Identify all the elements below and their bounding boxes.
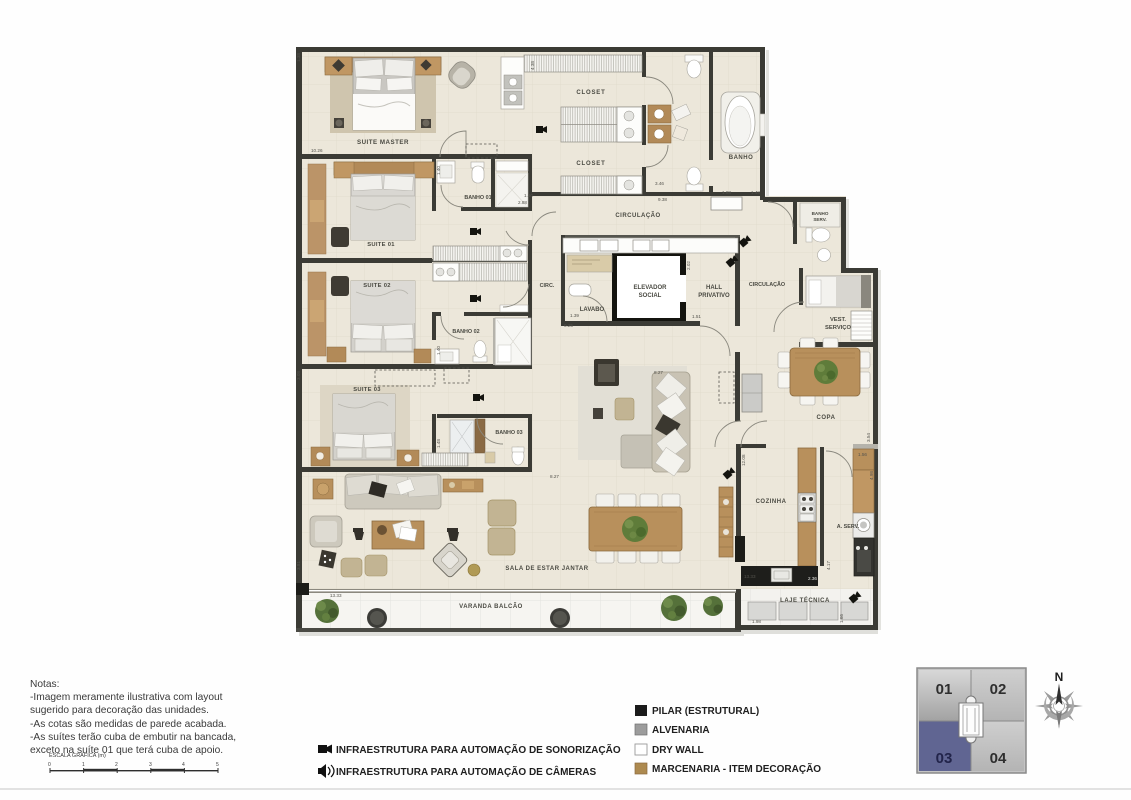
svg-text:1.38: 1.38	[296, 53, 301, 62]
svg-text:0: 0	[48, 762, 51, 768]
svg-text:1.48: 1.48	[436, 439, 441, 448]
svg-text:8.27: 8.27	[654, 370, 663, 375]
svg-text:13.33: 13.33	[744, 574, 756, 579]
svg-text:1.56: 1.56	[858, 452, 867, 457]
svg-text:SUITE 03: SUITE 03	[353, 387, 381, 393]
svg-text:BANHO 03: BANHO 03	[495, 430, 522, 436]
svg-text:LAJE TÉCNICA: LAJE TÉCNICA	[780, 596, 830, 604]
svg-text:04: 04	[990, 750, 1007, 767]
svg-text:ELEVADOR: ELEVADOR	[634, 285, 668, 291]
svg-text:-As cotas são medidas de pared: -As cotas são medidas de parede acabada.	[30, 719, 227, 730]
svg-text:4: 4	[182, 762, 185, 768]
svg-text:SOCIAL: SOCIAL	[639, 293, 662, 299]
svg-text:SALA DE ESTAR JANTAR: SALA DE ESTAR JANTAR	[505, 566, 588, 572]
svg-text:COZINHA: COZINHA	[756, 499, 787, 505]
svg-text:CLOSET: CLOSET	[576, 161, 605, 167]
svg-text:1.80: 1.80	[524, 193, 533, 198]
svg-text:sugerido para decoração das un: sugerido para decoração das unidades.	[30, 705, 209, 716]
svg-text:4.38: 4.38	[530, 61, 535, 70]
svg-text:SERVIÇO: SERVIÇO	[825, 325, 851, 331]
svg-text:CIRCULAÇÃO: CIRCULAÇÃO	[749, 281, 785, 288]
svg-text:ESCALA GRÁFICA (m): ESCALA GRÁFICA (m)	[49, 752, 106, 759]
svg-text:SUITE MASTER: SUITE MASTER	[357, 139, 409, 146]
svg-text:3.81: 3.81	[296, 561, 301, 570]
svg-text:-Imagem meramente ilustrativa: -Imagem meramente ilustrativa com layout	[30, 692, 223, 703]
svg-text:3.08: 3.08	[296, 371, 301, 380]
svg-text:1.48: 1.48	[751, 190, 760, 195]
svg-text:BANHO: BANHO	[729, 155, 754, 161]
svg-text:01: 01	[936, 681, 953, 698]
svg-text:02: 02	[990, 681, 1007, 698]
svg-text:VARANDA BALCÃO: VARANDA BALCÃO	[459, 603, 523, 610]
svg-text:VEST.: VEST.	[830, 317, 846, 323]
svg-text:BANHO 01: BANHO 01	[464, 195, 491, 201]
svg-text:CIRC.: CIRC.	[540, 283, 555, 289]
svg-text:MARCENARIA - ITEM DECORAÇÃO: MARCENARIA - ITEM DECORAÇÃO	[652, 762, 821, 775]
svg-text:5: 5	[216, 762, 219, 768]
svg-text:Notas:: Notas:	[30, 679, 59, 690]
svg-text:CLOSET: CLOSET	[576, 90, 605, 96]
svg-text:DRY WALL: DRY WALL	[652, 745, 704, 756]
svg-text:3.46: 3.46	[655, 181, 664, 186]
svg-text:PILAR (ESTRUTURAL): PILAR (ESTRUTURAL)	[652, 706, 759, 717]
svg-text:1.40: 1.40	[436, 346, 441, 355]
svg-text:INFRAESTRUTURA PARA AUTOMAÇÃO: INFRAESTRUTURA PARA AUTOMAÇÃO DE SONORIZ…	[336, 743, 621, 756]
svg-text:N: N	[1055, 670, 1064, 684]
svg-text:3: 3	[149, 762, 152, 768]
svg-text:4.17: 4.17	[826, 561, 831, 570]
svg-text:03: 03	[936, 750, 953, 767]
svg-text:-As suítes terão cuba de embu: -As suítes terão cuba de embutir na banc…	[30, 732, 236, 743]
svg-text:ALVENARIA: ALVENARIA	[652, 725, 710, 736]
svg-text:CIRCULAÇÃO: CIRCULAÇÃO	[615, 212, 660, 219]
svg-text:SERV.: SERV.	[813, 217, 826, 222]
svg-text:BANHO 02: BANHO 02	[452, 329, 479, 335]
svg-text:A. SERV.: A. SERV.	[837, 524, 860, 530]
svg-text:10.26: 10.26	[311, 148, 323, 153]
svg-text:2.02: 2.02	[686, 261, 691, 270]
svg-text:2.36: 2.36	[808, 576, 817, 581]
svg-text:1: 1	[82, 762, 85, 768]
svg-text:9.38: 9.38	[658, 197, 667, 202]
svg-text:PRIVATIVO: PRIVATIVO	[698, 293, 730, 299]
svg-text:2: 2	[115, 762, 118, 768]
svg-text:SUITE 02: SUITE 02	[363, 283, 391, 289]
svg-text:INFRAESTRUTURA PARA AUTOMAÇÃO: INFRAESTRUTURA PARA AUTOMAÇÃO DE CÂMERAS	[336, 765, 597, 778]
svg-text:LAVABO: LAVABO	[580, 307, 605, 313]
svg-text:0.25: 0.25	[564, 323, 573, 328]
svg-text:1.66: 1.66	[839, 614, 844, 623]
svg-text:1.40: 1.40	[436, 166, 441, 175]
svg-text:2.88: 2.88	[518, 200, 527, 205]
svg-text:1.98: 1.98	[752, 619, 761, 624]
svg-text:BANHO: BANHO	[812, 211, 829, 216]
svg-text:3.54: 3.54	[866, 433, 871, 442]
svg-text:13.33: 13.33	[330, 593, 342, 598]
svg-text:12.08: 12.08	[741, 454, 746, 466]
svg-text:SUITE 01: SUITE 01	[367, 242, 395, 248]
svg-text:1.88: 1.88	[722, 190, 731, 195]
svg-text:1.51: 1.51	[692, 314, 701, 319]
svg-text:HALL: HALL	[706, 285, 722, 291]
svg-text:1.39: 1.39	[570, 313, 579, 318]
svg-text:4.98: 4.98	[869, 471, 874, 480]
svg-text:8.27: 8.27	[550, 474, 559, 479]
svg-text:COPA: COPA	[817, 415, 836, 421]
